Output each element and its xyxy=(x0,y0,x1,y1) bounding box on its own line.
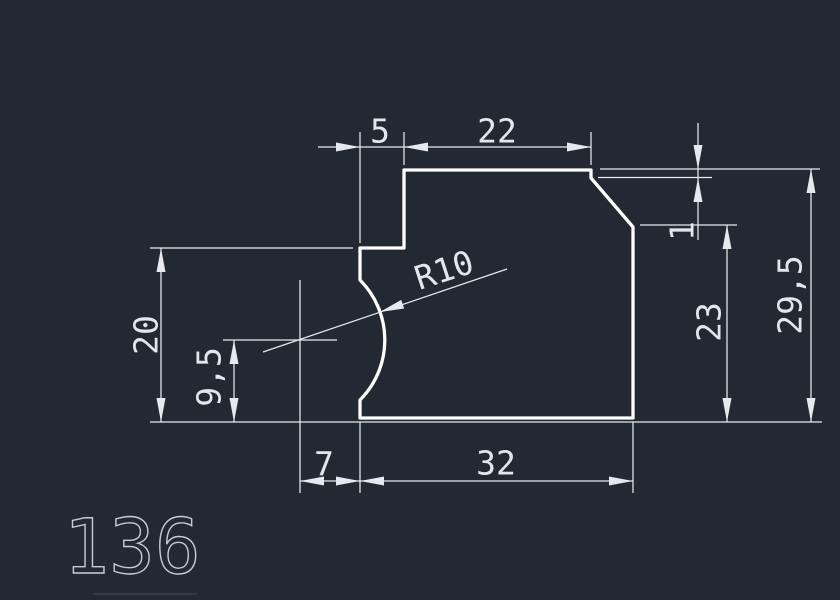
dim-left-height[interactable]: 20 xyxy=(127,248,166,422)
dim-arc-radius-label: R10 xyxy=(410,242,479,298)
dim-bottom-width[interactable]: 32 xyxy=(360,444,633,486)
cad-canvas[interactable]: 5 22 1 23 29,5 xyxy=(0,0,840,600)
dim-top-width[interactable]: 22 xyxy=(404,112,591,152)
dim-right-height-label: 23 xyxy=(690,302,729,342)
dim-bottom-width-label: 32 xyxy=(476,444,516,483)
arrowhead-down-icon xyxy=(694,145,703,169)
arrowhead-up-icon xyxy=(723,225,732,249)
cad-viewport[interactable]: 5 22 1 23 29,5 xyxy=(0,0,840,600)
arrowhead-right-icon xyxy=(609,477,633,486)
arrowhead-right-icon xyxy=(336,143,360,152)
part-number-label: 136 xyxy=(63,502,200,591)
part-profile[interactable] xyxy=(360,170,633,418)
profile-outline[interactable] xyxy=(360,170,633,418)
dim-left-height-label: 20 xyxy=(127,315,166,355)
dim-right-height[interactable]: 23 xyxy=(690,225,732,422)
arrowhead-down-icon xyxy=(723,398,732,422)
arrowhead-radius-icon xyxy=(380,300,404,312)
dim-arc-center-offset[interactable]: 7 xyxy=(300,445,360,486)
arrowhead-right-icon xyxy=(567,143,591,152)
dim-arc-center-height[interactable]: 9,5 xyxy=(190,340,239,422)
dim-top-offset[interactable]: 5 xyxy=(318,112,428,152)
dim-step-height[interactable]: 1 xyxy=(663,123,703,241)
dim-top-width-label: 22 xyxy=(477,112,517,151)
arrowhead-down-icon xyxy=(807,398,816,422)
arrowhead-up-icon xyxy=(230,340,239,364)
arrowhead-down-icon xyxy=(157,398,166,422)
arrowhead-down-icon xyxy=(230,398,239,422)
arrowhead-up-icon xyxy=(694,178,703,202)
arrowhead-up-icon xyxy=(807,169,816,193)
arrowhead-up-icon xyxy=(157,248,166,272)
dim-total-height[interactable]: 29,5 xyxy=(771,169,816,422)
dim-arc-center-offset-label: 7 xyxy=(314,445,334,484)
dim-arc-center-height-label: 9,5 xyxy=(190,347,229,407)
arrowhead-left-icon xyxy=(360,477,384,486)
dim-total-height-label: 29,5 xyxy=(771,255,810,334)
arrowhead-right-icon xyxy=(336,477,360,486)
dim-top-offset-label: 5 xyxy=(370,112,390,151)
dim-step-height-label: 1 xyxy=(663,221,702,241)
